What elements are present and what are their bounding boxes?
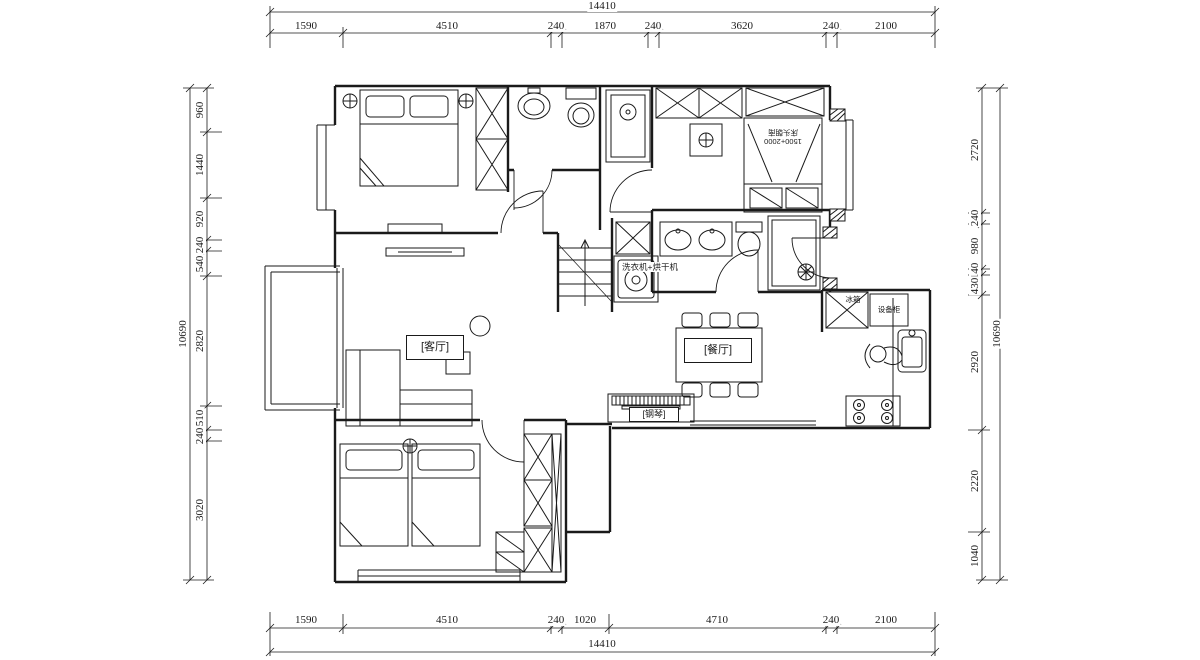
dim-bottom-total: 14410 [587, 638, 617, 650]
dim-top-seg-2: 240 [547, 20, 566, 32]
kitchen-sink-icon [898, 330, 926, 372]
dimension-lines [183, 6, 1008, 656]
dresser-bottom-bedroom [496, 532, 524, 572]
dim-top-seg-0: 1590 [294, 20, 318, 32]
window-dining [690, 421, 816, 425]
dim-left-seg-3: 240 [194, 236, 206, 255]
shower-icon-middle [768, 216, 820, 290]
shower-icon-top [606, 90, 650, 162]
dim-left-seg-6: 510 [194, 409, 206, 428]
dim-left-seg-1: 1440 [194, 153, 206, 177]
stairs-icon [558, 240, 612, 306]
bed-double-top-left [360, 90, 458, 186]
wardrobe-top-left [476, 88, 508, 190]
dim-left-seg-5: 2820 [194, 329, 206, 353]
dim-bottom-seg-0: 1590 [294, 614, 318, 626]
dim-left-seg-2: 920 [194, 210, 206, 229]
windows [265, 109, 853, 582]
dim-top-seg-1: 4510 [435, 20, 459, 32]
vanity-double-sink [660, 222, 732, 256]
balcony-bay [265, 266, 343, 410]
bay-window-right [830, 109, 853, 221]
dim-right-seg-2: 980 [969, 237, 981, 256]
dim-top-seg-5: 3620 [730, 20, 754, 32]
dim-top-seg-6: 240 [822, 20, 841, 32]
dim-bottom-seg-2: 240 [547, 614, 566, 626]
door-top-left-bedroom [501, 191, 543, 233]
bed-note: 1500+2000 床头朝南 [751, 128, 815, 146]
dim-left-seg-4: 540 [194, 255, 206, 274]
dresser-top-left [388, 224, 442, 233]
dim-top-seg-7: 2100 [874, 20, 898, 32]
dim-bottom-seg-4: 4710 [705, 614, 729, 626]
walls [335, 86, 930, 582]
entry-jambs [823, 227, 837, 289]
nightstand-top-right [690, 124, 722, 156]
toilet-icon-top-bath [566, 88, 596, 127]
dim-right-seg-1: 240 [969, 209, 981, 228]
window-left-bedroom [317, 125, 335, 210]
dining-room-label: [餐厅] [684, 338, 752, 363]
washer-dryer-label: 洗衣机+烘干机 [622, 262, 678, 272]
dim-left-seg-8: 3020 [194, 498, 206, 522]
dim-bottom-seg-6: 2100 [874, 614, 898, 626]
dim-bottom-seg-1: 4510 [435, 614, 459, 626]
fridge-label: 冰箱 [840, 295, 866, 304]
door-top-right-bedroom [610, 170, 652, 212]
dim-right-seg-6: 2220 [969, 469, 981, 493]
tv-console [386, 248, 464, 256]
door-top-bathroom [514, 170, 552, 210]
dim-right-seg-7: 1040 [969, 544, 981, 568]
ceiling-lamp-icon [403, 439, 417, 453]
piano-label: [钢琴] [629, 407, 679, 422]
cabinet-x-laundry [616, 222, 650, 254]
bed-single-right [412, 444, 480, 546]
dim-bottom-seg-5: 240 [822, 614, 841, 626]
floor-plan-page: 14410 1590 4510 240 1870 240 3620 240 21… [0, 0, 1200, 660]
dim-bottom-seg-3: 1020 [573, 614, 597, 626]
dim-top-seg-3: 1870 [593, 20, 617, 32]
sink-icon-top-bath [518, 88, 550, 119]
wardrobe-bottom-bedroom [524, 434, 561, 572]
wardrobe-top-right [656, 88, 824, 118]
stove-icon [846, 396, 900, 426]
sofa-icon [346, 350, 472, 426]
dim-top-total: 14410 [587, 0, 617, 12]
side-table-icon [470, 316, 490, 336]
bed-note-size: 1500+2000 [751, 137, 815, 146]
dim-right-total: 10690 [991, 319, 1003, 349]
wall-lamp-icon [343, 94, 473, 108]
dim-right-seg-5: 2920 [969, 350, 981, 374]
door-bottom-bedroom [482, 420, 524, 462]
living-room-label: [客厅] [406, 335, 464, 360]
equipment-cabinet-label: 设备柜 [872, 305, 906, 314]
furniture [340, 88, 926, 572]
bed-note-text: 床头朝南 [751, 128, 815, 137]
dim-left-seg-7: 240 [194, 427, 206, 446]
person-icon [865, 344, 902, 368]
dim-top-seg-4: 240 [644, 20, 663, 32]
bed-single-left [340, 444, 408, 546]
dim-right-seg-4: 430 [969, 277, 981, 296]
dim-right-seg-0: 2720 [969, 138, 981, 162]
dim-left-seg-0: 960 [194, 101, 206, 120]
dim-left-total: 10690 [177, 319, 189, 349]
